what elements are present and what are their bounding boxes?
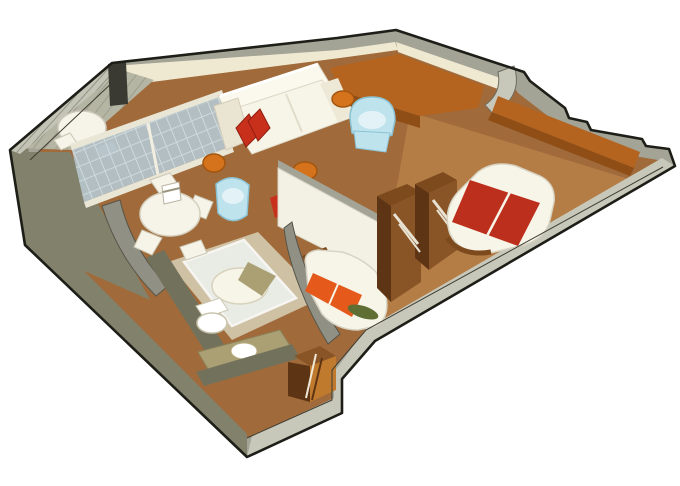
floorplan-image	[0, 0, 680, 486]
ottoman-stool	[332, 91, 354, 107]
armchair-seat	[358, 111, 386, 129]
table-pitcher	[162, 182, 181, 204]
barrel-chair-seat	[222, 188, 244, 204]
wardrobe-front	[415, 184, 429, 270]
toilet-bowl	[197, 313, 227, 333]
armchair-front	[354, 131, 390, 152]
blue-barrel-chair	[216, 178, 249, 221]
wardrobe-front	[377, 196, 391, 302]
stateroom-floorplan-svg	[0, 0, 680, 486]
ottoman-stool	[203, 154, 225, 172]
